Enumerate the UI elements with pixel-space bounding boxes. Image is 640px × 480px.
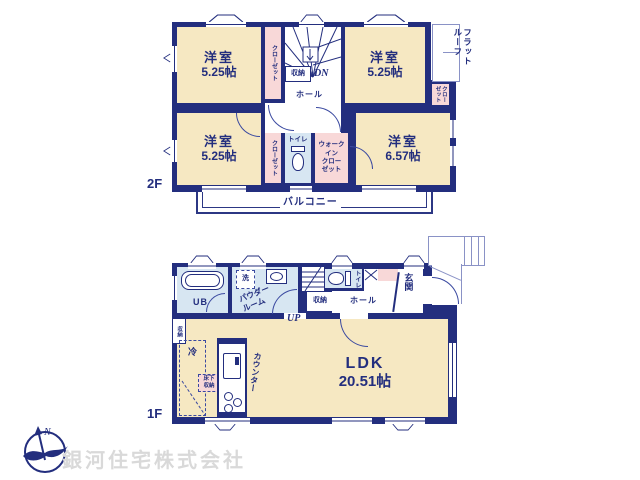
up-label: UP bbox=[287, 313, 300, 325]
underfloor-label: 床下 収納 bbox=[203, 376, 214, 390]
room-b-name: 洋室 bbox=[370, 51, 400, 66]
shoe-box bbox=[364, 269, 378, 281]
wic-label: ウォーク イン クロー ゼット bbox=[319, 141, 345, 175]
f2-room-d: 洋室 6.57帖 bbox=[356, 113, 450, 185]
window bbox=[172, 46, 177, 72]
f1-storage-box: 収納 bbox=[306, 291, 334, 312]
f2-toilet-label: トイレ bbox=[288, 136, 308, 143]
window bbox=[332, 263, 352, 269]
kitchen-counter bbox=[217, 338, 247, 418]
window bbox=[299, 22, 324, 27]
window-marker bbox=[403, 255, 425, 263]
window-marker bbox=[241, 255, 265, 263]
closet-a-label: クローゼット bbox=[270, 45, 277, 81]
room-d-name: 洋室 bbox=[388, 135, 418, 150]
f2-toilet-room: トイレ bbox=[285, 133, 311, 183]
room-c-size: 5.25帖 bbox=[201, 150, 236, 164]
closet-c-label: クローゼット bbox=[270, 140, 277, 176]
f2-closet-a: クローゼット bbox=[265, 27, 281, 99]
window bbox=[172, 276, 177, 300]
window-marker bbox=[163, 145, 171, 157]
f2-storage-box: 収納 bbox=[285, 66, 311, 82]
window-marker bbox=[208, 14, 244, 22]
room-b-size: 5.25帖 bbox=[367, 66, 402, 80]
door-arc bbox=[272, 289, 297, 314]
window bbox=[450, 146, 456, 166]
balcony-label: バルコニー bbox=[280, 197, 341, 209]
f1-storage-label: 収納 bbox=[313, 297, 327, 305]
window-marker bbox=[190, 255, 214, 263]
window bbox=[332, 418, 372, 424]
window-marker bbox=[214, 424, 236, 431]
f2-hall-label: ホール bbox=[296, 90, 323, 99]
window-marker bbox=[331, 255, 353, 263]
flat-roof-label: フラット ルーフ bbox=[452, 28, 472, 106]
genkan-label: 玄関 bbox=[403, 273, 413, 309]
window bbox=[450, 120, 456, 138]
f2-wic: ウォーク イン クロー ゼット bbox=[315, 133, 348, 183]
hall-ldk-opening bbox=[340, 313, 368, 319]
f1-stairs bbox=[302, 267, 324, 291]
f1-ub: UB bbox=[177, 267, 228, 313]
window-marker bbox=[392, 424, 414, 431]
kitchen-sink bbox=[223, 353, 241, 379]
ldk-name: LDK bbox=[346, 355, 385, 373]
closet-b-label: クロー ゼット bbox=[434, 86, 447, 103]
porch-steps bbox=[428, 236, 485, 266]
ldk-size: 20.51帖 bbox=[339, 373, 392, 390]
window bbox=[188, 263, 216, 269]
washer-space: 洗 bbox=[236, 270, 255, 289]
f1-toilet-label: トイレ bbox=[353, 270, 360, 288]
company-name: 銀河住宅株式会社 bbox=[62, 444, 246, 473]
room-c-name: 洋室 bbox=[204, 135, 234, 150]
f1-powder-room: 洗 パウダー ルーム bbox=[232, 267, 298, 313]
ldk-label: LDK 20.51帖 bbox=[310, 355, 420, 391]
window bbox=[206, 22, 246, 27]
door-arc bbox=[206, 293, 225, 312]
f2-storage-label: 収納 bbox=[291, 70, 305, 78]
compass-north-label: N bbox=[43, 427, 52, 438]
window bbox=[172, 140, 177, 162]
window-marker bbox=[366, 14, 406, 22]
window bbox=[364, 22, 408, 27]
window-marker bbox=[300, 14, 324, 22]
window bbox=[449, 343, 456, 397]
side-storage-label: 収納 bbox=[176, 326, 182, 337]
f1-hall-label: ホール bbox=[350, 296, 377, 305]
room-a-name: 洋室 bbox=[204, 51, 234, 66]
window bbox=[240, 263, 266, 269]
entrance-opening bbox=[423, 276, 432, 304]
floor-plan-canvas: フラット ルーフ 洋室 5.25帖 クローゼット 収納 DN ホール 洋室 5 bbox=[0, 0, 640, 480]
f2-room-b: 洋室 5.25帖 bbox=[345, 27, 425, 103]
room-d-size: 6.57帖 bbox=[385, 150, 420, 164]
f1-floor-label: 1F bbox=[147, 407, 162, 422]
washer-label: 洗 bbox=[242, 275, 249, 283]
room-a-size: 5.25帖 bbox=[201, 66, 236, 80]
f2-closet-b: クロー ゼット bbox=[432, 84, 449, 105]
window-marker bbox=[163, 52, 171, 64]
fridge-label: 冷 bbox=[188, 347, 197, 357]
f2-closet-c: クローゼット bbox=[265, 133, 281, 183]
f2-room-a: 洋室 5.25帖 bbox=[177, 27, 261, 103]
f2-dn-label: DN bbox=[314, 68, 328, 80]
window bbox=[404, 263, 424, 269]
f2-floor-label: 2F bbox=[147, 177, 162, 192]
sink-icon bbox=[266, 269, 287, 284]
f1-toilet-room: トイレ bbox=[325, 269, 362, 288]
